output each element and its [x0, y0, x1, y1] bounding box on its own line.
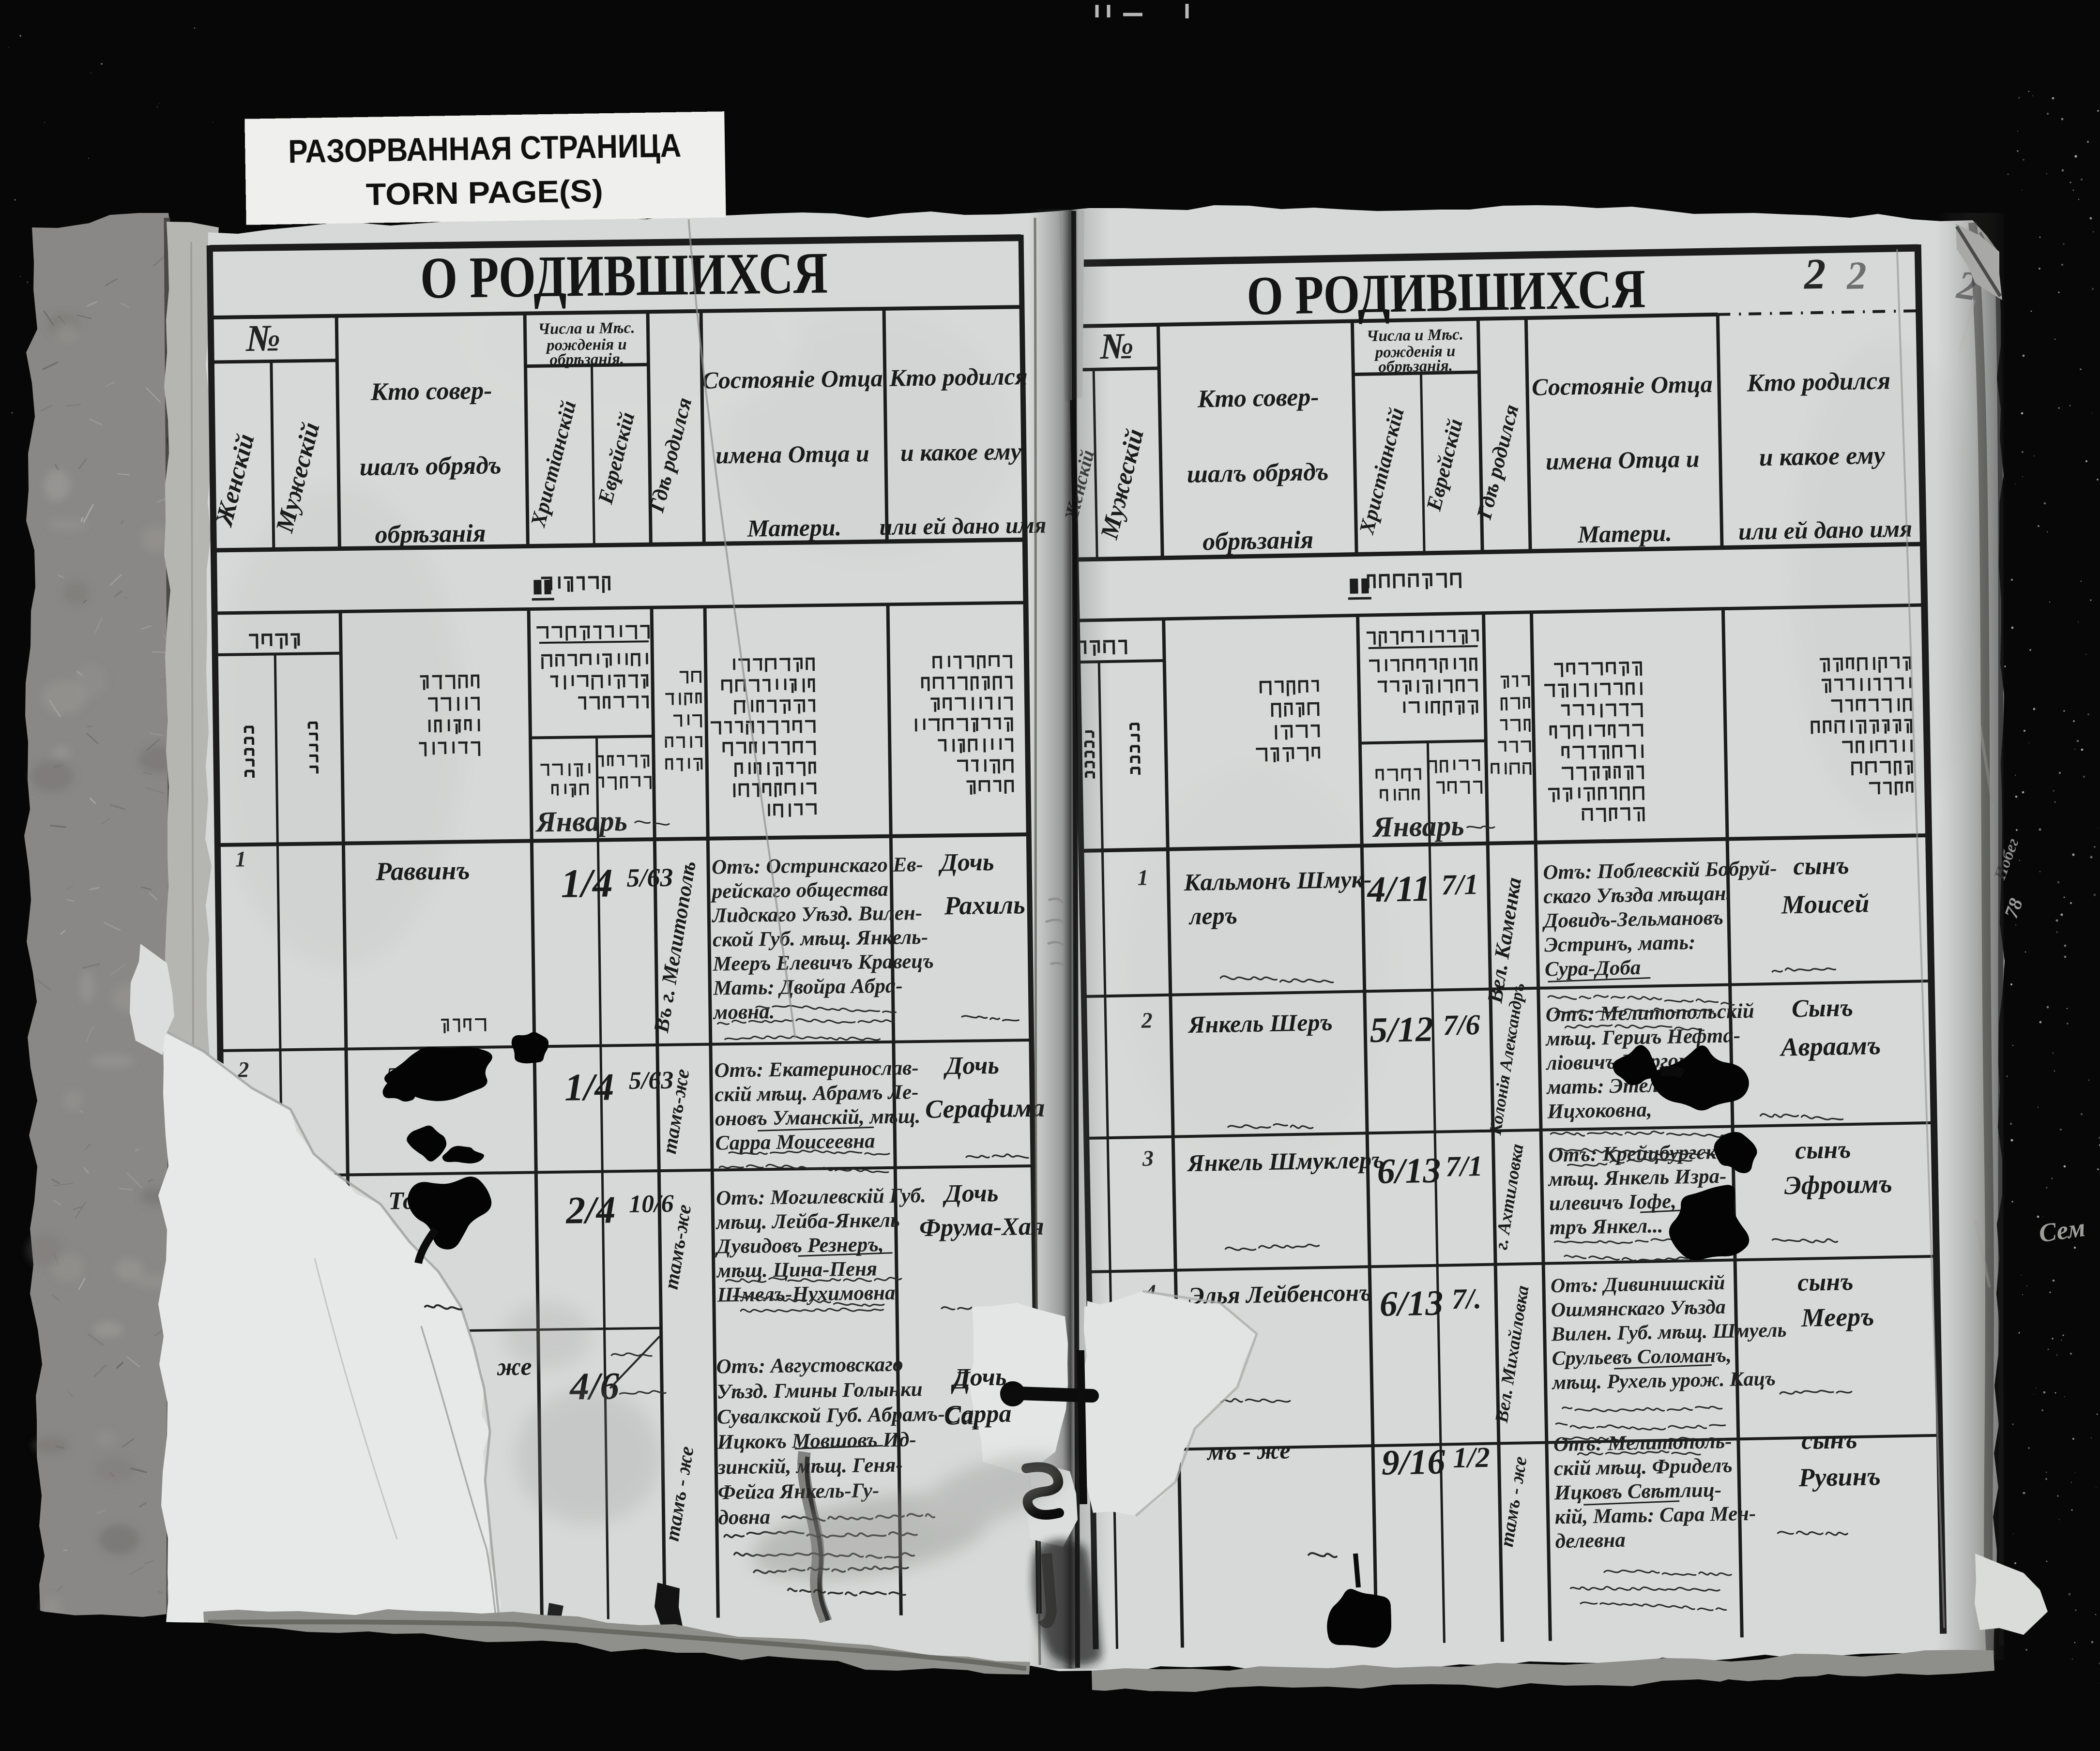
svg-text:10/6: 10/6	[629, 1190, 674, 1218]
svg-text:1/2: 1/2	[1453, 1441, 1491, 1474]
svg-text:делевна: делевна	[1555, 1529, 1626, 1553]
svg-text:Срульевъ Соломанъ,: Срульевъ Соломанъ,	[1552, 1344, 1732, 1370]
svg-text:6/13: 6/13	[1377, 1151, 1441, 1192]
svg-text:Сура-Доба: Сура-Доба	[1545, 956, 1641, 981]
svg-text:Довидъ-Зельмановъ: Довидъ-Зельмановъ	[1542, 906, 1724, 933]
svg-text:обрѣзанiя: обрѣзанiя	[375, 520, 486, 549]
svg-text:Серафима: Серафима	[925, 1093, 1045, 1124]
svg-text:5/63: 5/63	[628, 1067, 673, 1095]
svg-text:Дочь: Дочь	[938, 848, 994, 877]
svg-text:7/6: 7/6	[1443, 1009, 1480, 1041]
svg-text:мѣщ. Рухель урож. Кацъ: мѣщ. Рухель урож. Кацъ	[1551, 1368, 1776, 1394]
svg-text:Ицкокъ Мовшовъ Ид-: Ицкокъ Мовшовъ Ид-	[716, 1428, 916, 1453]
svg-text:скiй мѣщ. Абрамъ Ле-: скiй мѣщ. Абрамъ Ле-	[715, 1081, 919, 1106]
svg-text:2: 2	[1846, 253, 1867, 298]
svg-text:сынъ: сынъ	[1793, 852, 1849, 880]
svg-text:Состоянiе Отца: Состоянiе Отца	[1532, 370, 1713, 401]
svg-text:обрѣзанiя.: обрѣзанiя.	[549, 350, 624, 369]
svg-text:Дочь: Дочь	[943, 1052, 999, 1080]
svg-text:обрѣзанiя: обрѣзанiя	[1202, 526, 1314, 556]
svg-text:Кто родился: Кто родился	[1746, 367, 1891, 397]
svg-text:РАЗОРВАННАЯ СТРАНИЦА: РАЗОРВАННАЯ СТРАНИЦА	[288, 127, 682, 170]
svg-text:Мать: Двойра Абра-: Мать: Двойра Абра-	[713, 974, 903, 999]
svg-text:7/.: 7/.	[1451, 1283, 1482, 1315]
svg-text:Уѣзд. Гмины Голынки: Уѣзд. Гмины Голынки	[716, 1378, 923, 1404]
svg-text:Дочь: Дочь	[951, 1363, 1007, 1392]
svg-text:Вилен. Губ. мѣщ. Шмуель: Вилен. Губ. мѣщ. Шмуель	[1551, 1319, 1787, 1345]
svg-text:Ошмянскаго Уѣзда: Ошмянскаго Уѣзда	[1551, 1296, 1726, 1322]
svg-text:1: 1	[235, 846, 246, 871]
svg-text:шалъ обрядъ: шалъ обрядъ	[1187, 458, 1329, 488]
svg-text:или ей дано имя: или ей дано имя	[1738, 514, 1912, 545]
svg-text:Сувалкской Губ. Абрамъ-: Сувалкской Губ. Абрамъ-	[717, 1403, 945, 1428]
svg-text:Фейга Янкель-Гу-: Фейга Янкель-Гу-	[718, 1479, 880, 1504]
svg-text:и какое ему: и какое ему	[900, 438, 1022, 466]
svg-text:и какое ему: и какое ему	[1759, 441, 1886, 471]
svg-text:Эстринъ, мать:: Эстринъ, мать:	[1544, 931, 1696, 957]
svg-text:1/4: 1/4	[564, 1066, 614, 1109]
svg-text:Январь: Январь	[1372, 810, 1465, 843]
svg-text:Моисей: Моисей	[1780, 889, 1870, 919]
svg-text:Мееръ: Мееръ	[1800, 1302, 1874, 1332]
svg-text:Сынъ: Сынъ	[1792, 994, 1854, 1023]
svg-text:TORN PAGE(S): TORN PAGE(S)	[365, 173, 603, 212]
svg-text:5/12: 5/12	[1370, 1010, 1434, 1050]
svg-text:мѣщ. Цина-Пеня: мѣщ. Цина-Пеня	[716, 1257, 878, 1282]
svg-text:Матери.: Матери.	[746, 513, 841, 542]
svg-text:5/63: 5/63	[626, 863, 673, 892]
svg-text:мѣщ. Лейба-Янкель: мѣщ. Лейба-Янкель	[715, 1209, 900, 1234]
svg-text:Шмелъ-Нухимовна: Шмелъ-Нухимовна	[716, 1282, 895, 1307]
svg-text:или ей дано имя: или ей дано имя	[879, 513, 1046, 541]
svg-text:Отъ: Екатеринослав-: Отъ: Екатеринослав-	[714, 1057, 919, 1082]
svg-text:1: 1	[1137, 865, 1149, 890]
svg-text:шалъ обрядъ: шалъ обрядъ	[359, 452, 502, 481]
svg-text:оновъ Уманскiй, мѣщ.: оновъ Уманскiй, мѣщ.	[715, 1105, 921, 1131]
svg-text:9/16: 9/16	[1381, 1442, 1446, 1482]
svg-text:сынъ: сынъ	[1797, 1268, 1854, 1297]
svg-text:Янкель Шеръ: Янкель Шеръ	[1187, 1009, 1333, 1038]
svg-text:довна: довна	[718, 1506, 770, 1529]
svg-text:Дочь: Дочь	[943, 1179, 999, 1208]
svg-text:Отъ: Мелитопольскiй: Отъ: Мелитопольскiй	[1545, 1000, 1754, 1026]
svg-text:Лидскаго Уѣзд. Вилен-: Лидскаго Уѣзд. Вилен-	[711, 902, 922, 927]
svg-text:Матери.: Матери.	[1577, 519, 1672, 548]
svg-text:Отъ: Августовскаго: Отъ: Августовскаго	[716, 1353, 903, 1378]
svg-text:сынъ: сынъ	[1795, 1136, 1851, 1164]
svg-text:Фрума-Хая: Фрума-Хая	[919, 1213, 1044, 1242]
svg-text:О РОДИВШИХСЯ: О РОДИВШИХСЯ	[420, 240, 828, 311]
svg-text:№: №	[244, 317, 281, 359]
svg-text:мъ - же: мъ - же	[1206, 1436, 1291, 1465]
svg-text:Отъ: Остринскаго Ев-: Отъ: Остринскаго Ев-	[712, 853, 923, 879]
svg-text:Отъ: Дивинишскiй: Отъ: Дивинишскiй	[1551, 1272, 1725, 1298]
svg-text:рейскаго общества: рейскаго общества	[710, 878, 888, 903]
svg-text:2: 2	[1141, 1008, 1153, 1032]
svg-text:Рахиль: Рахиль	[943, 890, 1025, 920]
svg-text:леръ: леръ	[1188, 902, 1237, 930]
svg-text:7/1: 7/1	[1441, 868, 1479, 901]
svg-text:Рувинъ: Рувинъ	[1798, 1462, 1881, 1492]
svg-text:Ицхоковна,: Ицхоковна,	[1547, 1099, 1652, 1123]
svg-text:Январь: Январь	[535, 805, 627, 838]
svg-text:7/1: 7/1	[1445, 1150, 1483, 1182]
svg-text:1/4: 1/4	[561, 860, 613, 906]
svg-text:Отъ: Мелитополь-: Отъ: Мелитополь-	[1553, 1430, 1732, 1456]
svg-text:Авраамъ: Авраамъ	[1779, 1031, 1881, 1062]
svg-text:Сарра Моисеевна: Сарра Моисеевна	[715, 1130, 875, 1154]
svg-text:кiй, Мать: Сара Мен-: кiй, Мать: Сара Мен-	[1554, 1502, 1756, 1529]
svg-text:2/4: 2/4	[565, 1189, 616, 1232]
svg-text:Отъ: Могилевскiй Губ.: Отъ: Могилевскiй Губ.	[716, 1184, 926, 1210]
svg-text:сынъ: сынъ	[1801, 1426, 1857, 1455]
svg-text:Сарра: Сарра	[944, 1400, 1012, 1429]
svg-text:Состоянiе Отца: Состоянiе Отца	[702, 364, 883, 394]
svg-text:Янкель Шмуклеръ: Янкель Шмуклеръ	[1187, 1146, 1385, 1177]
svg-text:тръ Янкел...: тръ Янкел...	[1549, 1214, 1663, 1239]
svg-text:3: 3	[1142, 1146, 1154, 1170]
svg-text:ской Губ. мѣщ. Янкель-: ской Губ. мѣщ. Янкель-	[713, 926, 928, 951]
svg-text:Ицковъ Свѣтлиц-: Ицковъ Свѣтлиц-	[1553, 1479, 1721, 1504]
svg-text:скiй мѣщ. Фриделъ: скiй мѣщ. Фриделъ	[1553, 1454, 1733, 1480]
svg-text:Эфроимъ: Эфроимъ	[1784, 1169, 1892, 1200]
svg-text:Числа и Мѣс.: Числа и Мѣс.	[538, 319, 635, 338]
svg-text:2: 2	[1803, 250, 1826, 299]
svg-text:6/13: 6/13	[1379, 1283, 1444, 1324]
svg-text:обрѣзанiя.: обрѣзанiя.	[1378, 357, 1453, 376]
svg-text:4/11: 4/11	[1366, 868, 1431, 910]
svg-text:Кальмонъ Шмук-: Кальмонъ Шмук-	[1183, 865, 1372, 896]
svg-text:Отъ: Поблевскiй Бобруй-: Отъ: Поблевскiй Бобруй-	[1543, 857, 1777, 884]
svg-text:имена Отца и: имена Отца и	[1545, 445, 1700, 475]
svg-text:имена Отца и: имена Отца и	[715, 439, 869, 468]
svg-text:Кто родился: Кто родился	[889, 362, 1028, 392]
svg-text:же: же	[496, 1353, 532, 1381]
svg-text:О РОДИВШИХСЯ: О РОДИВШИХСЯ	[1246, 257, 1646, 326]
svg-text:мѣщ. Янкель Изра-: мѣщ. Янкель Изра-	[1548, 1165, 1727, 1191]
svg-text:Отъ: Крейцбургскiй: Отъ: Крейцбургскiй	[1548, 1140, 1734, 1166]
svg-text:Мееръ Елевичъ Кравецъ: Мееръ Елевичъ Кравецъ	[712, 950, 934, 976]
svg-text:Кто совер-: Кто совер-	[370, 377, 492, 406]
svg-text:Раввинъ: Раввинъ	[375, 856, 470, 886]
svg-text:Кто совер-: Кто совер-	[1197, 383, 1319, 413]
svg-text:скаго Уѣзда мѣщан.: скаго Уѣзда мѣщан.	[1543, 882, 1732, 908]
